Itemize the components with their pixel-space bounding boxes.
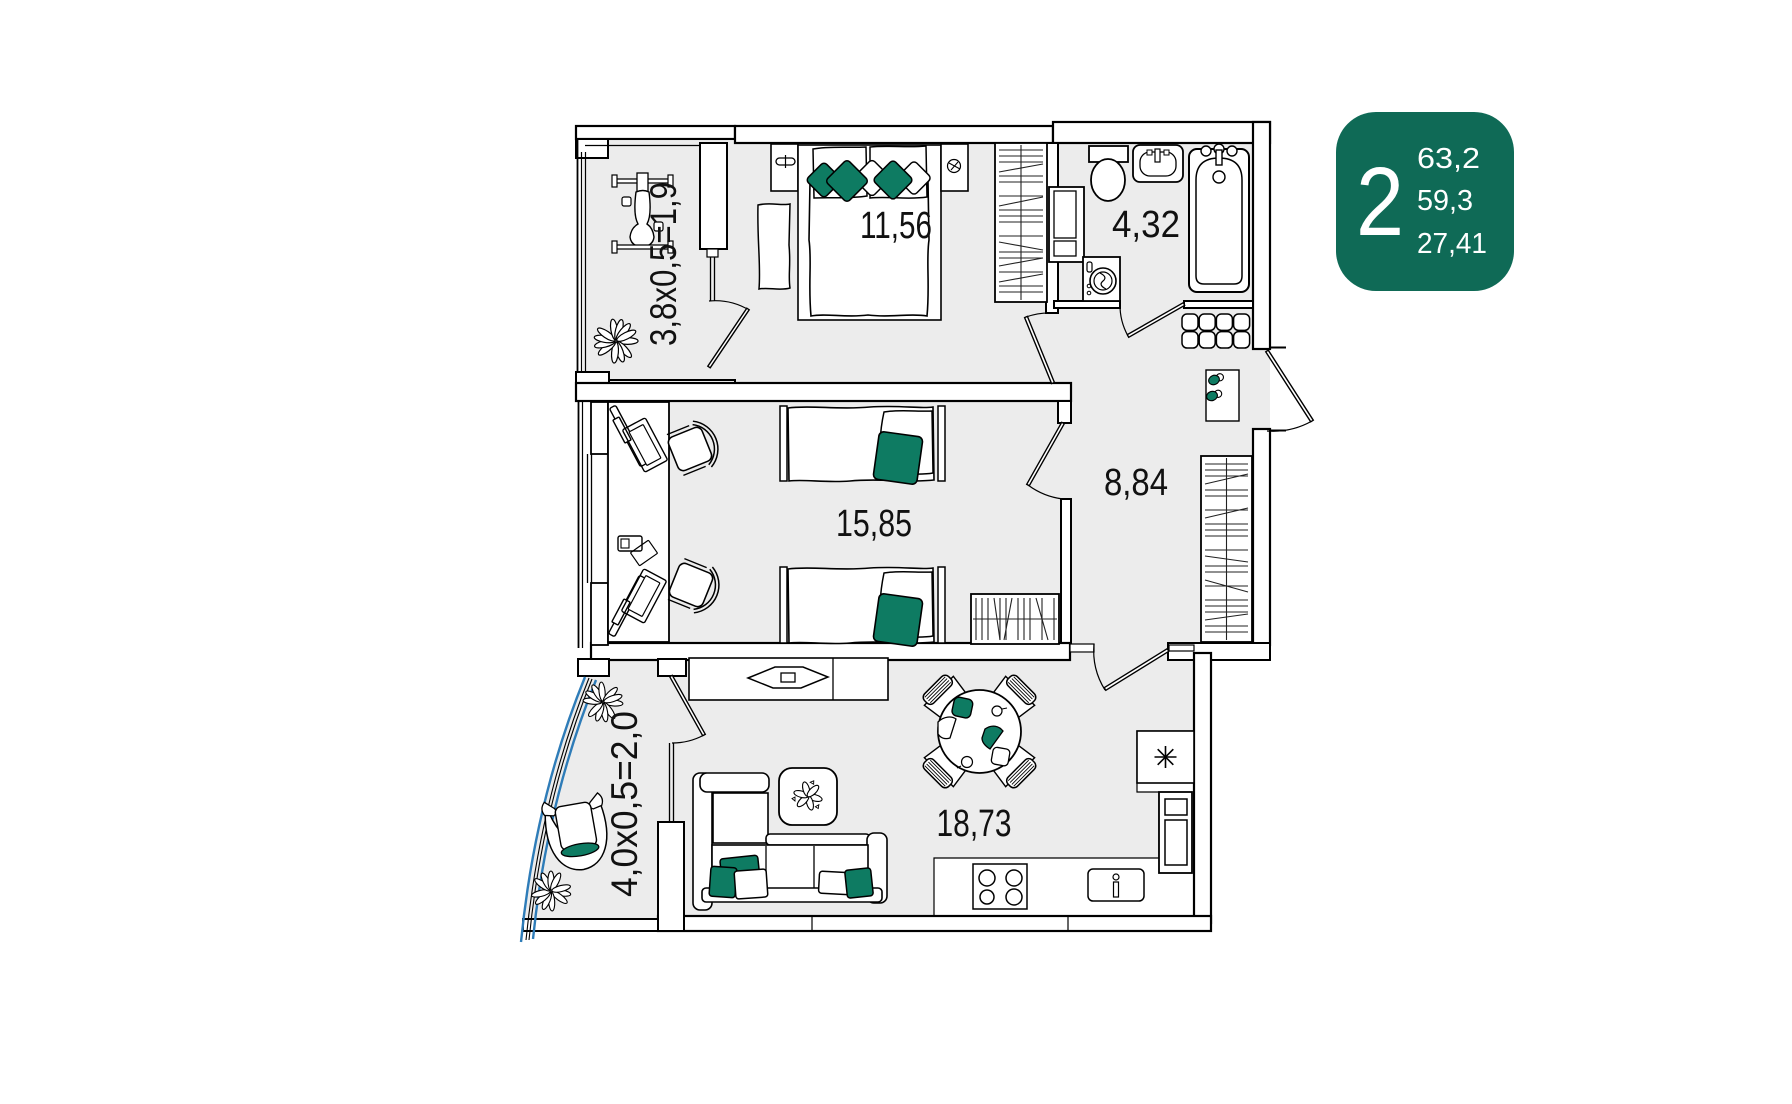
svg-text:4,32: 4,32	[1112, 204, 1180, 246]
svg-text:27,41: 27,41	[1417, 228, 1487, 260]
svg-text:11,56: 11,56	[860, 205, 932, 247]
svg-text:59,3: 59,3	[1417, 185, 1473, 217]
svg-text:3,8x0,5=1,9: 3,8x0,5=1,9	[643, 182, 684, 346]
svg-text:15,85: 15,85	[836, 503, 912, 545]
svg-text:63,2: 63,2	[1417, 143, 1480, 175]
svg-text:8,84: 8,84	[1104, 462, 1168, 504]
svg-text:4,0x0,5=2,0: 4,0x0,5=2,0	[604, 711, 645, 897]
svg-text:2: 2	[1356, 147, 1404, 256]
svg-text:18,73: 18,73	[937, 803, 1012, 845]
